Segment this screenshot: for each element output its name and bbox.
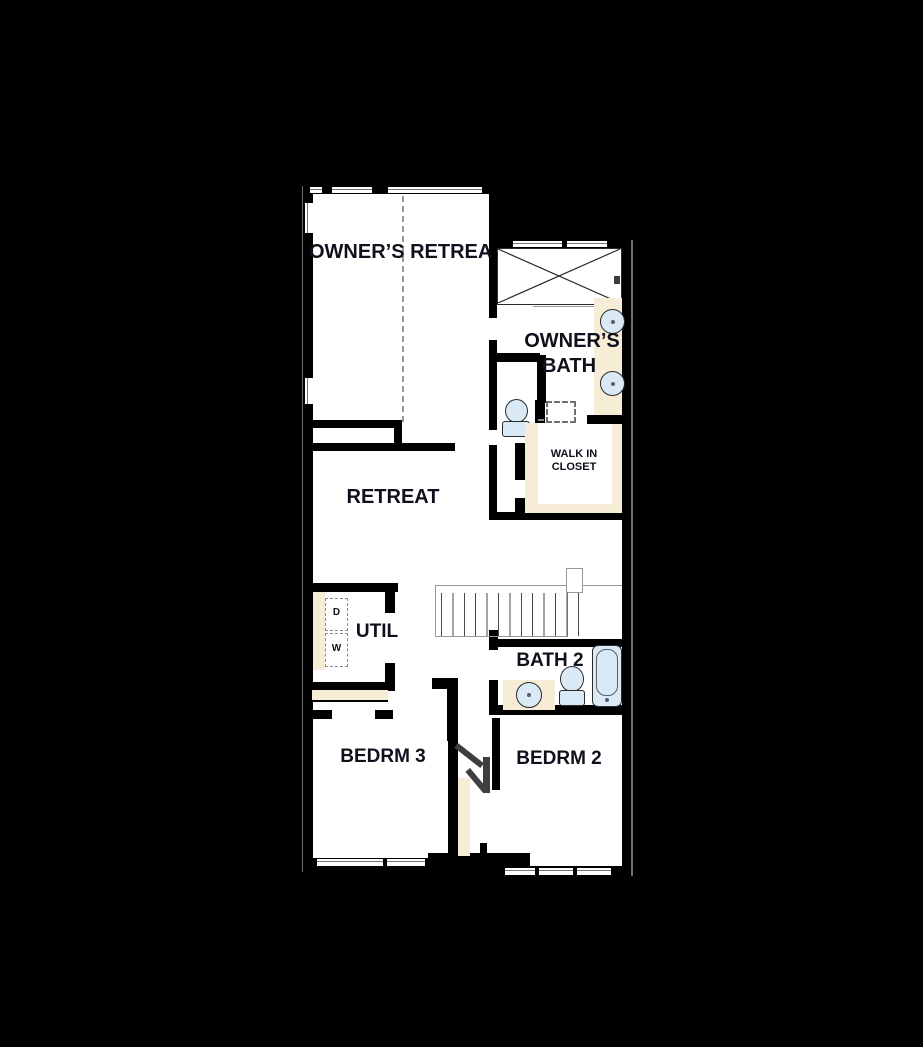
retreat-ceiling-dashed-line — [402, 196, 404, 422]
wall-retreat-east-lower — [489, 445, 497, 520]
bath2-sink — [516, 682, 542, 708]
window-shower-top-2 — [567, 241, 607, 247]
washer-label: W — [325, 643, 348, 655]
owners-retreat-label: OWNER’S RETREAT — [309, 241, 491, 264]
floorplan-page: D W OWNER’S RETREAT OWNER’S BATH WALK IN… — [0, 0, 923, 1047]
right-exterior-trim — [631, 240, 633, 876]
wall-hall-tee-horizontal — [432, 678, 458, 689]
wall-vanity-closet-divider — [587, 415, 622, 424]
window-retreat-top-3 — [388, 187, 482, 193]
bath2-tub-drain-icon — [605, 698, 609, 702]
window-bedroom3-bottom-2 — [387, 859, 425, 866]
bedroom2-label: BEDRM 2 — [509, 748, 609, 770]
left-exterior-trim — [302, 186, 303, 872]
walk-in-closet-label-line1: WALK IN — [534, 448, 614, 461]
wall-left-exterior — [305, 186, 313, 872]
owners-bath-label-line1: OWNER’S — [517, 330, 627, 353]
window-bedroom2-bottom-1 — [505, 868, 535, 875]
wall-closet-west-a — [515, 443, 525, 480]
retreat-label: RETREAT — [343, 486, 443, 509]
walk-in-closet-label-line2: CLOSET — [534, 461, 614, 474]
floorplan: D W OWNER’S RETREAT OWNER’S BATH WALK IN… — [0, 0, 923, 1047]
util-counter — [313, 592, 325, 670]
wall-bedroom3-east — [448, 741, 458, 858]
wall-bedroom3-north-b — [375, 710, 393, 719]
closet-bifold-door-jamb-icon — [483, 757, 490, 793]
shower — [497, 248, 622, 305]
dryer-label: D — [325, 607, 348, 619]
wall-bedroom3-north-a — [305, 710, 332, 719]
stairs-treads — [441, 593, 579, 636]
wall-closet-east — [492, 718, 500, 790]
window-bedroom3-bottom-1 — [317, 859, 383, 866]
wall-util-east-upper — [385, 583, 395, 613]
util-label: UTIL — [347, 621, 407, 643]
stairs-landing — [566, 568, 583, 593]
bath2-toilet-base — [559, 690, 585, 706]
window-retreat-top-2 — [332, 187, 372, 193]
bedroom2-closet-shelf — [458, 778, 470, 856]
shower-glass-x-icon — [498, 249, 620, 303]
closet-entry-dashed-opening — [546, 401, 576, 423]
wall-closet-west-b — [515, 498, 525, 516]
wall-closet-south — [489, 512, 630, 520]
wall-closet-stub — [480, 843, 487, 857]
wall-owners-retreat-south-a — [305, 420, 402, 428]
bath2-label: BATH 2 — [500, 650, 600, 672]
wall-hall-tee-vertical — [447, 689, 458, 741]
owners-toilet-bowl — [505, 399, 528, 423]
window-left-lower — [305, 378, 313, 404]
bedroom3-label: BEDRM 3 — [333, 746, 433, 768]
owners-bath-label-line2: BATH — [514, 355, 624, 378]
window-bedroom2-bottom-3 — [577, 868, 611, 875]
hall-linen-shelf — [312, 690, 388, 702]
wall-owners-retreat-south-c — [313, 443, 455, 451]
window-retreat-top-1 — [310, 187, 322, 193]
window-shower-top-1 — [513, 241, 562, 247]
closet-shelf-bottom — [525, 504, 622, 513]
shower-door-icon — [614, 276, 620, 284]
window-bedroom2-bottom-2 — [539, 868, 573, 875]
window-left-upper — [305, 203, 313, 233]
wall-retreat-east-mid — [489, 340, 497, 430]
